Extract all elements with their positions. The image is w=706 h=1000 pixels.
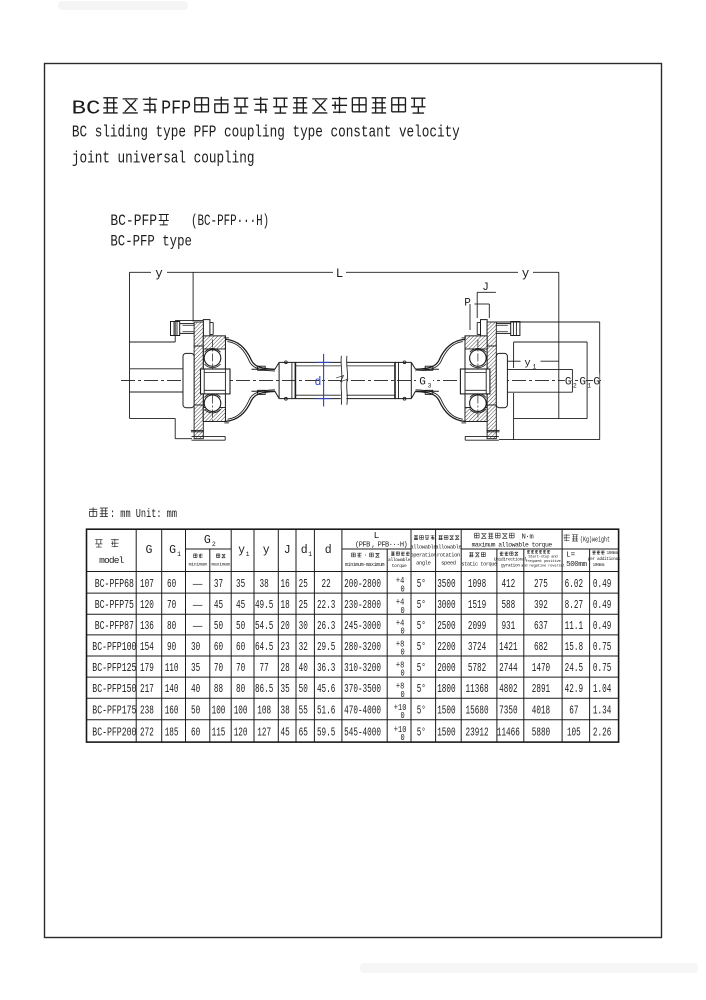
svg-text:and negative reversal: and negative reversal — [521, 564, 566, 569]
svg-text:—: — — [191, 579, 203, 591]
svg-text:1519: 1519 — [468, 598, 486, 612]
svg-text:88: 88 — [214, 682, 223, 696]
svg-text:55: 55 — [299, 704, 308, 718]
svg-text:per additional: per additional — [588, 557, 621, 562]
svg-text:G: G — [565, 377, 572, 389]
svg-text:35: 35 — [281, 682, 290, 696]
svg-text:2000: 2000 — [437, 661, 455, 675]
svg-text:L=: L= — [566, 552, 576, 560]
svg-text:BC-PFP type: BC-PFP type — [110, 233, 191, 251]
svg-text:7350: 7350 — [499, 704, 517, 718]
svg-text:470-4000: 470-4000 — [344, 704, 381, 718]
svg-text:1421: 1421 — [499, 640, 517, 654]
svg-text:637: 637 — [534, 619, 548, 633]
svg-text:gyration: gyration — [501, 564, 520, 569]
svg-text:minimum: minimum — [189, 562, 207, 568]
svg-text:BC-PFP200: BC-PFP200 — [92, 725, 136, 739]
svg-text:minimum-maximum: minimum-maximum — [345, 562, 384, 568]
svg-text:J: J — [482, 282, 489, 294]
svg-text:(PFB: (PFB — [355, 542, 370, 550]
svg-text:allowable: allowable — [410, 545, 436, 551]
svg-text:0.49: 0.49 — [593, 577, 611, 591]
svg-text:11.1: 11.1 — [565, 619, 583, 633]
svg-text:50: 50 — [214, 619, 223, 633]
svg-text:682: 682 — [534, 640, 548, 654]
svg-text:45: 45 — [236, 598, 245, 612]
svg-text:rotation: rotation — [437, 553, 460, 559]
svg-text:110: 110 — [165, 661, 179, 675]
svg-text:2: 2 — [212, 541, 216, 548]
svg-text:50: 50 — [191, 704, 200, 718]
svg-text:0: 0 — [401, 605, 405, 616]
svg-text:BC-PFP68: BC-PFP68 — [95, 577, 134, 591]
svg-text:86.5: 86.5 — [255, 682, 273, 696]
svg-text:40: 40 — [191, 682, 200, 696]
svg-text:70: 70 — [236, 661, 245, 675]
svg-text:Unidirectional: Unidirectional — [494, 558, 527, 563]
svg-text:392: 392 — [534, 598, 548, 612]
svg-text:100: 100 — [212, 704, 226, 718]
svg-text:0: 0 — [401, 668, 405, 679]
svg-text:200-2800: 200-2800 — [344, 577, 381, 591]
svg-text:0.49: 0.49 — [593, 598, 611, 612]
svg-text:PFB···H): PFB···H) — [378, 542, 408, 550]
svg-text:1800: 1800 — [437, 682, 455, 696]
svg-text:4018: 4018 — [532, 704, 550, 718]
svg-text:24.5: 24.5 — [565, 661, 583, 675]
svg-text:179: 179 — [140, 661, 154, 675]
svg-text:107: 107 — [140, 577, 154, 591]
svg-text:torque: torque — [392, 563, 407, 569]
svg-text:70: 70 — [167, 598, 176, 612]
svg-text:4802: 4802 — [499, 682, 517, 696]
svg-text:speed: speed — [441, 561, 456, 567]
svg-text:5°: 5° — [417, 577, 426, 591]
svg-text:35: 35 — [236, 577, 245, 591]
svg-text:3000: 3000 — [437, 598, 455, 612]
svg-text:1: 1 — [587, 383, 591, 390]
svg-text:0: 0 — [401, 647, 405, 658]
svg-text:BC-PFP150: BC-PFP150 — [92, 682, 136, 696]
svg-text:275: 275 — [534, 577, 548, 591]
svg-text:15680: 15680 — [466, 704, 489, 718]
svg-text:L: L — [336, 267, 344, 281]
svg-text:y: y — [522, 267, 530, 281]
svg-text:0: 0 — [401, 710, 405, 721]
svg-text:931: 931 — [501, 619, 515, 633]
svg-text:1: 1 — [246, 551, 250, 558]
svg-text:BC-PFP: BC-PFP — [110, 212, 157, 230]
svg-text:40: 40 — [299, 661, 308, 675]
svg-text:50: 50 — [299, 682, 308, 696]
svg-text:238: 238 — [140, 704, 154, 718]
svg-text:42.9: 42.9 — [565, 682, 583, 696]
svg-text:60: 60 — [214, 640, 223, 654]
svg-text:310-3200: 310-3200 — [344, 661, 381, 675]
svg-text:30: 30 — [191, 640, 200, 654]
svg-text:allowable: allowable — [435, 545, 461, 551]
svg-text:51.6: 51.6 — [317, 704, 335, 718]
svg-text:100mm: 100mm — [593, 564, 605, 568]
svg-text:185: 185 — [165, 725, 179, 739]
svg-text:37: 37 — [214, 577, 223, 591]
svg-text:5°: 5° — [417, 619, 426, 633]
svg-text:49.5: 49.5 — [255, 598, 273, 612]
svg-text:1098: 1098 — [468, 577, 486, 591]
svg-text:26.3: 26.3 — [317, 619, 335, 633]
svg-text:45: 45 — [214, 598, 223, 612]
svg-text:BC-PFP175: BC-PFP175 — [92, 704, 136, 718]
svg-text:25: 25 — [299, 577, 308, 591]
svg-text:16: 16 — [281, 577, 290, 591]
svg-text:1500: 1500 — [437, 704, 455, 718]
svg-text:59.5: 59.5 — [317, 725, 335, 739]
svg-text:90: 90 — [167, 640, 176, 654]
svg-text:77: 77 — [260, 661, 269, 675]
svg-text:3500: 3500 — [437, 577, 455, 591]
svg-text:5°: 5° — [417, 598, 426, 612]
svg-text:100: 100 — [234, 704, 248, 718]
svg-text:23: 23 — [281, 640, 290, 654]
svg-text:22.3: 22.3 — [317, 598, 335, 612]
svg-text:230-2800: 230-2800 — [344, 598, 381, 612]
svg-text:2744: 2744 — [499, 661, 517, 675]
svg-text:5782: 5782 — [468, 661, 486, 675]
svg-text:(Kg)weight: (Kg)weight — [580, 537, 610, 545]
svg-text:G: G — [204, 534, 211, 547]
svg-text:0.49: 0.49 — [593, 619, 611, 633]
svg-text:BC: BC — [72, 98, 101, 120]
svg-text:angle: angle — [416, 561, 431, 567]
svg-text:N·m: N·m — [522, 534, 534, 542]
svg-text:d: d — [301, 544, 308, 557]
svg-text:G: G — [169, 544, 176, 557]
svg-text:5°: 5° — [417, 661, 426, 675]
svg-text:2.26: 2.26 — [593, 725, 611, 739]
svg-text:3724: 3724 — [468, 640, 486, 654]
svg-text:67: 67 — [569, 704, 578, 718]
svg-text:y: y — [524, 357, 530, 369]
svg-text:70: 70 — [214, 661, 223, 675]
svg-text:45: 45 — [281, 725, 290, 739]
svg-text:23912: 23912 — [466, 725, 489, 739]
svg-text:370-3500: 370-3500 — [344, 682, 381, 696]
svg-text:G: G — [593, 377, 600, 389]
svg-text:65: 65 — [299, 725, 308, 739]
svg-text:1470: 1470 — [532, 661, 550, 675]
svg-text:1: 1 — [308, 551, 312, 558]
svg-text:3: 3 — [428, 383, 432, 390]
svg-text:0.75: 0.75 — [593, 661, 611, 675]
svg-text:30: 30 — [299, 619, 308, 633]
svg-text:115: 115 — [212, 725, 226, 739]
svg-text:25: 25 — [299, 598, 308, 612]
svg-text:—: — — [191, 621, 203, 633]
svg-text:G: G — [145, 544, 152, 557]
svg-text:—: — — [191, 600, 203, 612]
svg-text:0: 0 — [401, 626, 405, 637]
svg-text:: mm Unit: mm: : mm Unit: mm — [110, 507, 177, 521]
svg-text:64.5: 64.5 — [255, 640, 273, 654]
svg-text:45.6: 45.6 — [317, 682, 335, 696]
svg-text:2200: 2200 — [437, 640, 455, 654]
svg-text:60: 60 — [236, 640, 245, 654]
svg-text:model: model — [99, 555, 125, 566]
svg-text:1: 1 — [177, 551, 181, 558]
svg-text:y: y — [155, 267, 163, 281]
svg-text:5°: 5° — [417, 704, 426, 718]
svg-text:1.04: 1.04 — [593, 682, 611, 696]
svg-text:1500: 1500 — [437, 725, 455, 739]
svg-text:2891: 2891 — [532, 682, 550, 696]
svg-text:BC-PFP87: BC-PFP87 — [95, 619, 134, 633]
svg-text:32: 32 — [299, 640, 308, 654]
svg-text:160: 160 — [165, 704, 179, 718]
svg-text:38: 38 — [281, 704, 290, 718]
svg-text:y: y — [263, 544, 270, 557]
svg-text:static torque: static torque — [461, 562, 497, 568]
svg-text:joint universal coupling: joint universal coupling — [72, 150, 255, 169]
svg-text:28: 28 — [281, 661, 290, 675]
svg-text:217: 217 — [140, 682, 154, 696]
svg-text:G: G — [579, 377, 586, 389]
svg-text:127: 127 — [257, 725, 271, 739]
svg-text:2: 2 — [573, 383, 577, 390]
svg-text:105: 105 — [567, 725, 581, 739]
svg-text:245-3000: 245-3000 — [344, 619, 381, 633]
svg-text:22: 22 — [322, 577, 331, 591]
svg-text:588: 588 — [501, 598, 515, 612]
svg-text:38: 38 — [260, 577, 269, 591]
svg-text:8.27: 8.27 — [565, 598, 583, 612]
svg-text:frequent positive: frequent positive — [525, 559, 561, 564]
svg-text:BC sliding type PFP coupling t: BC sliding type PFP coupling type consta… — [72, 124, 460, 143]
svg-text:G: G — [419, 377, 426, 389]
svg-text:L: L — [374, 530, 380, 541]
svg-text:60: 60 — [167, 577, 176, 591]
svg-text:412: 412 — [501, 577, 515, 591]
svg-text:5°: 5° — [417, 725, 426, 739]
svg-text:·: · — [364, 552, 368, 559]
svg-text:(BC-PFP···H): (BC-PFP···H) — [191, 212, 269, 230]
svg-text:maximum allowable torque: maximum allowable torque — [472, 542, 553, 549]
svg-text:35: 35 — [191, 661, 200, 675]
svg-text:0: 0 — [401, 732, 405, 743]
svg-text:108: 108 — [257, 704, 271, 718]
svg-text:2500: 2500 — [437, 619, 455, 633]
svg-text:maximum: maximum — [211, 562, 229, 568]
svg-text:0: 0 — [401, 689, 405, 700]
svg-text:PFP: PFP — [161, 98, 191, 120]
svg-text:80: 80 — [167, 619, 176, 633]
svg-text:J: J — [284, 544, 291, 557]
svg-text:5880: 5880 — [532, 725, 550, 739]
svg-text:BC-PFP125: BC-PFP125 — [92, 661, 136, 675]
svg-text:120: 120 — [234, 725, 248, 739]
svg-text:18: 18 — [281, 598, 290, 612]
svg-text:15.8: 15.8 — [565, 640, 583, 654]
svg-text:60: 60 — [191, 725, 200, 739]
svg-text:154: 154 — [140, 640, 154, 654]
svg-text:500mm: 500mm — [566, 561, 587, 569]
svg-text:120: 120 — [140, 598, 154, 612]
svg-text:11466: 11466 — [497, 725, 520, 739]
svg-text:36.3: 36.3 — [317, 661, 335, 675]
svg-text:,: , — [371, 542, 375, 550]
svg-text:1.34: 1.34 — [593, 704, 611, 718]
svg-text:y: y — [238, 544, 245, 557]
svg-text:11368: 11368 — [466, 682, 489, 696]
svg-text:0.75: 0.75 — [593, 640, 611, 654]
svg-text:2099: 2099 — [468, 619, 486, 633]
svg-text:20: 20 — [281, 619, 290, 633]
svg-text:545-4000: 545-4000 — [344, 725, 381, 739]
svg-text:50: 50 — [236, 619, 245, 633]
svg-text:5°: 5° — [417, 682, 426, 696]
svg-text:BC-PFP75: BC-PFP75 — [95, 598, 134, 612]
svg-text:5°: 5° — [417, 640, 426, 654]
svg-text:80: 80 — [236, 682, 245, 696]
svg-text:54.5: 54.5 — [255, 619, 273, 633]
svg-text:0: 0 — [401, 583, 405, 594]
svg-text:d: d — [325, 544, 332, 557]
svg-text:136: 136 — [140, 619, 154, 633]
svg-text:operation: operation — [410, 553, 436, 559]
svg-text:6.02: 6.02 — [565, 577, 583, 591]
svg-text:140: 140 — [165, 682, 179, 696]
svg-text:280-3200: 280-3200 — [344, 640, 381, 654]
svg-text:Start-stop and: Start-stop and — [528, 555, 557, 560]
svg-text:272: 272 — [140, 725, 154, 739]
svg-text:BC-PFP100: BC-PFP100 — [92, 640, 136, 654]
svg-text:100mm: 100mm — [607, 552, 619, 556]
svg-text:29.5: 29.5 — [317, 640, 335, 654]
svg-text:d: d — [315, 376, 322, 389]
svg-text:allowable: allowable — [388, 557, 411, 563]
